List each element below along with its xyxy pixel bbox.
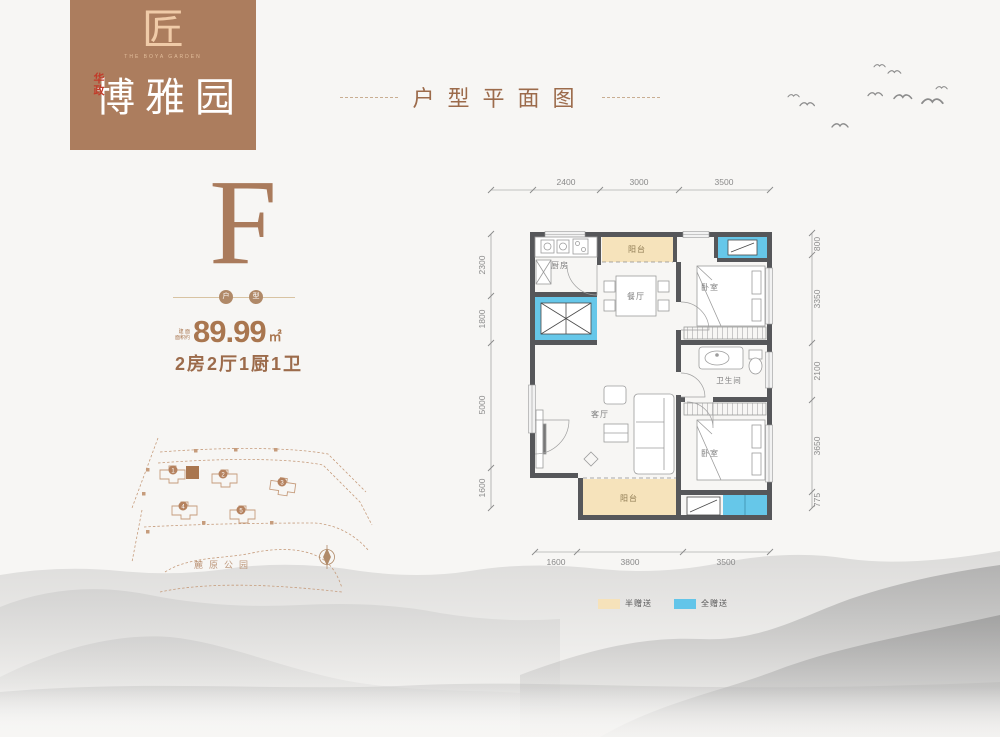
svg-text:2300: 2300 — [477, 255, 487, 274]
road-left-diagonal — [132, 438, 158, 508]
room-label-dining: 餐厅 — [627, 292, 645, 301]
room-label-bedroom-bottom: 卧室 — [701, 448, 719, 458]
road-name-marks — [142, 448, 278, 534]
svg-text:2100: 2100 — [812, 361, 822, 380]
room-label-bathroom: 卫生间 — [716, 375, 742, 385]
park-label: 麓原公园 — [194, 559, 254, 570]
room-label-kitchen: 厨房 — [551, 260, 569, 270]
unit-divider: 户 型 — [173, 290, 295, 304]
legend-item-full-gift: 全赠送 — [674, 598, 728, 609]
tv-icon — [543, 424, 546, 454]
floorplan: 厨房 阳台 餐厅 卧室 卫生间 客厅 卧室 阳台 2400 3000 3500 … — [470, 165, 830, 575]
svg-text:1800: 1800 — [477, 309, 487, 328]
title-dash-left — [340, 97, 398, 98]
area-unit: ㎡ — [269, 326, 282, 345]
full-gift-swatch — [674, 599, 696, 609]
logo-latin-text: THE BOYA GARDEN — [70, 54, 256, 61]
svg-text:3350: 3350 — [812, 289, 822, 308]
tv-cabinet-icon — [536, 410, 543, 468]
bathroom-sink-icon — [699, 347, 743, 369]
sofa-icon — [634, 394, 674, 474]
birds-flock-icon — [770, 50, 980, 150]
furniture — [535, 237, 766, 480]
svg-text:775: 775 — [812, 493, 822, 507]
svg-text:3000: 3000 — [630, 177, 649, 187]
unit-config: 2房2厅1厨1卫 — [175, 350, 303, 376]
room-label-bedroom-top: 卧室 — [701, 282, 719, 292]
gift-legend: 半赠送 全赠送 — [598, 598, 750, 609]
armchair-icon — [604, 386, 626, 404]
svg-text:3800: 3800 — [621, 557, 640, 567]
unit-area: 建 面 面积约 89.99 ㎡ — [175, 318, 282, 346]
highlighted-building — [186, 466, 199, 479]
wardrobe-top — [684, 327, 766, 339]
unit-type-letter: F — [183, 168, 303, 278]
svg-text:800: 800 — [812, 237, 822, 251]
badge-xing: 型 — [249, 290, 263, 304]
project-name: 博雅园 — [84, 65, 256, 123]
plant-icon — [584, 452, 598, 466]
room-label-living: 客厅 — [591, 409, 609, 419]
badge-hu: 户 — [219, 290, 233, 304]
legend-item-half-gift: 半赠送 — [598, 598, 652, 609]
title-dash-right — [602, 97, 660, 98]
page-header: 户型平面图 — [330, 82, 670, 112]
svg-text:3500: 3500 — [717, 557, 736, 567]
brand-prefix: 华政 — [92, 73, 106, 97]
page-title: 户型平面图 — [412, 81, 587, 113]
toilet-icon — [749, 350, 762, 374]
craftsman-seal-icon: 匠 — [70, 8, 256, 54]
project-logo: 匠 THE BOYA GARDEN 华政 博雅园 — [70, 0, 256, 150]
room-label-balcony-top: 阳台 — [628, 244, 646, 254]
half-gift-swatch — [598, 599, 620, 609]
compass-icon — [320, 545, 335, 569]
svg-text:3500: 3500 — [715, 177, 734, 187]
site-map: 1 2 3 4 5 麓原公园 — [130, 430, 375, 615]
svg-text:3650: 3650 — [812, 436, 822, 455]
bed-top-icon — [697, 266, 765, 326]
svg-text:1600: 1600 — [547, 557, 566, 567]
svg-text:2400: 2400 — [557, 177, 576, 187]
wardrobe-bottom — [684, 403, 766, 415]
coffee-table-icon — [604, 424, 628, 442]
svg-text:1600: 1600 — [477, 478, 487, 497]
area-value: 89.99 — [193, 318, 266, 346]
svg-text:5000: 5000 — [477, 395, 487, 414]
room-label-balcony-bottom: 阳台 — [620, 493, 638, 503]
